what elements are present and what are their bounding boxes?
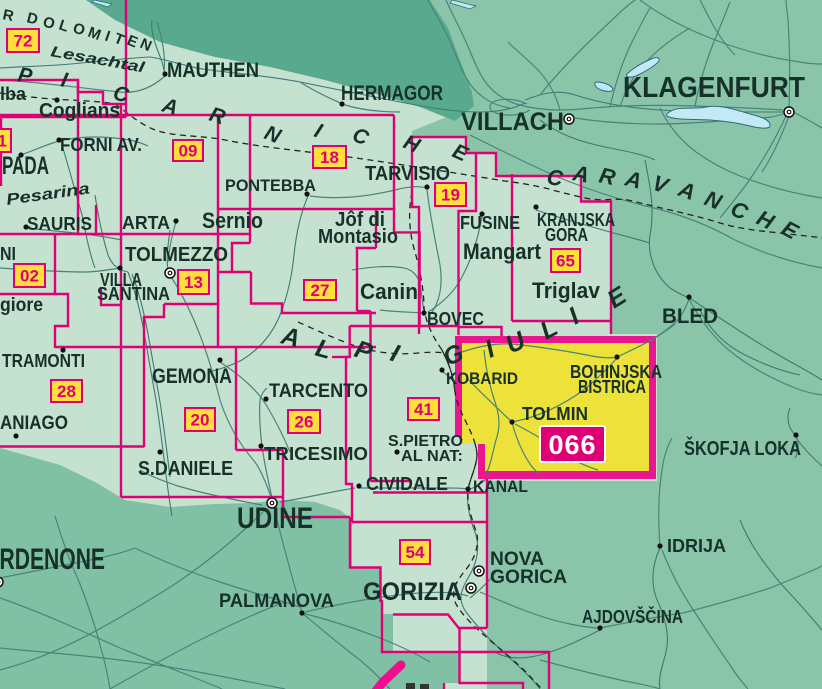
svg-text:20: 20 bbox=[191, 411, 210, 430]
svg-text:19: 19 bbox=[441, 186, 460, 205]
svg-text:BISTRICA: BISTRICA bbox=[578, 377, 646, 397]
svg-text:NI: NI bbox=[0, 244, 16, 264]
svg-text:54: 54 bbox=[406, 543, 425, 562]
svg-text:CIVIDALE: CIVIDALE bbox=[366, 474, 448, 494]
svg-text:giore: giore bbox=[0, 295, 43, 316]
svg-text:Sernio: Sernio bbox=[202, 208, 263, 233]
svg-text:PONTEBBA: PONTEBBA bbox=[225, 176, 316, 195]
svg-text:18: 18 bbox=[320, 148, 339, 167]
svg-text:UDINE: UDINE bbox=[237, 502, 313, 535]
svg-text:MAUTHEN: MAUTHEN bbox=[167, 59, 259, 82]
svg-text:02: 02 bbox=[20, 267, 39, 286]
svg-text:TRICESIMO: TRICESIMO bbox=[264, 444, 368, 464]
svg-text:GEMONA: GEMONA bbox=[152, 365, 232, 388]
svg-text:27: 27 bbox=[311, 281, 330, 300]
svg-text:KANAL: KANAL bbox=[473, 477, 528, 496]
svg-text:KOBARID: KOBARID bbox=[446, 369, 518, 388]
svg-text:BOVEC: BOVEC bbox=[427, 309, 484, 329]
svg-text:KLAGENFURT: KLAGENFURT bbox=[623, 72, 805, 104]
svg-text:GORICA: GORICA bbox=[490, 567, 567, 588]
svg-text:72: 72 bbox=[14, 32, 33, 51]
svg-text:65: 65 bbox=[556, 252, 575, 271]
svg-text:SAURIS: SAURIS bbox=[27, 214, 92, 234]
svg-text:S.DANIELE: S.DANIELE bbox=[138, 458, 233, 480]
svg-text:VILLACH: VILLACH bbox=[461, 108, 564, 136]
svg-text:PADA: PADA bbox=[2, 152, 49, 180]
svg-text:BLED: BLED bbox=[662, 305, 718, 328]
svg-text:Mangart: Mangart bbox=[463, 239, 542, 264]
svg-text:26: 26 bbox=[295, 413, 314, 432]
svg-text:Montasio: Montasio bbox=[318, 226, 398, 248]
svg-text:AL NAT:: AL NAT: bbox=[401, 448, 463, 465]
svg-text:HERMAGOR: HERMAGOR bbox=[341, 82, 443, 105]
svg-text:28: 28 bbox=[57, 382, 76, 401]
svg-text:FUSINE: FUSINE bbox=[460, 213, 520, 233]
svg-text:TOLMEZZO: TOLMEZZO bbox=[125, 244, 228, 266]
svg-text:PORDENONE: PORDENONE bbox=[0, 543, 105, 576]
svg-text:13: 13 bbox=[184, 273, 203, 292]
svg-text:ANIAGO: ANIAGO bbox=[0, 413, 68, 434]
svg-text:ŠKOFJA LOKA: ŠKOFJA LOKA bbox=[684, 436, 801, 460]
svg-text:IDRIJA: IDRIJA bbox=[667, 536, 726, 556]
svg-text:GORA: GORA bbox=[545, 225, 588, 245]
svg-text:PALMANOVA: PALMANOVA bbox=[219, 591, 334, 612]
svg-text:TRAMONTI: TRAMONTI bbox=[2, 351, 85, 371]
svg-text:066: 066 bbox=[548, 430, 596, 460]
svg-text:TARCENTO: TARCENTO bbox=[269, 381, 368, 402]
svg-text:GORIZIA: GORIZIA bbox=[363, 578, 462, 606]
svg-text:TARVISIO: TARVISIO bbox=[365, 163, 450, 185]
svg-text:41: 41 bbox=[414, 400, 433, 419]
svg-text:Triglav: Triglav bbox=[532, 278, 601, 303]
svg-text:01: 01 bbox=[0, 132, 7, 151]
svg-text:Coglians: Coglians bbox=[39, 100, 120, 122]
svg-text:09: 09 bbox=[179, 142, 198, 161]
svg-text:AJDOVŠČINA: AJDOVŠČINA bbox=[582, 606, 683, 627]
svg-text:FORNI AV.: FORNI AV. bbox=[60, 135, 142, 155]
svg-text:SANTINA: SANTINA bbox=[97, 284, 170, 304]
svg-text:ARTA: ARTA bbox=[122, 213, 170, 233]
svg-text:TOLMIN: TOLMIN bbox=[522, 404, 588, 424]
svg-text:Canin: Canin bbox=[360, 279, 418, 304]
